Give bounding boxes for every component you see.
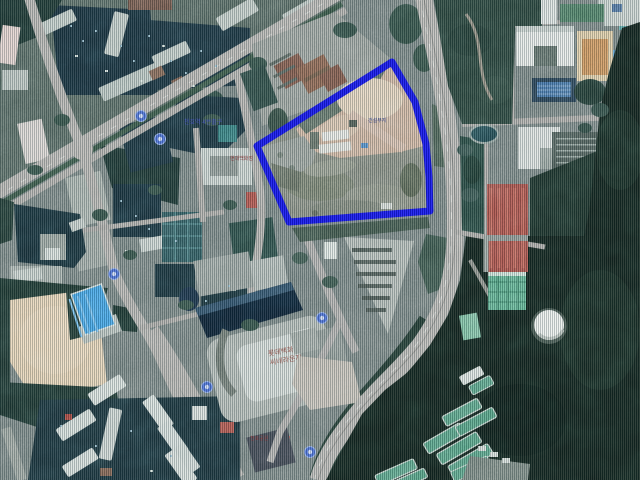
svg-text:현대백화점: 현대백화점 [230, 155, 253, 162]
svg-text:건설부지: 건설부지 [368, 117, 386, 124]
svg-text:천호공원: 천호공원 [250, 435, 269, 442]
svg-text:천호역 4번출구: 천호역 4번출구 [184, 118, 223, 126]
